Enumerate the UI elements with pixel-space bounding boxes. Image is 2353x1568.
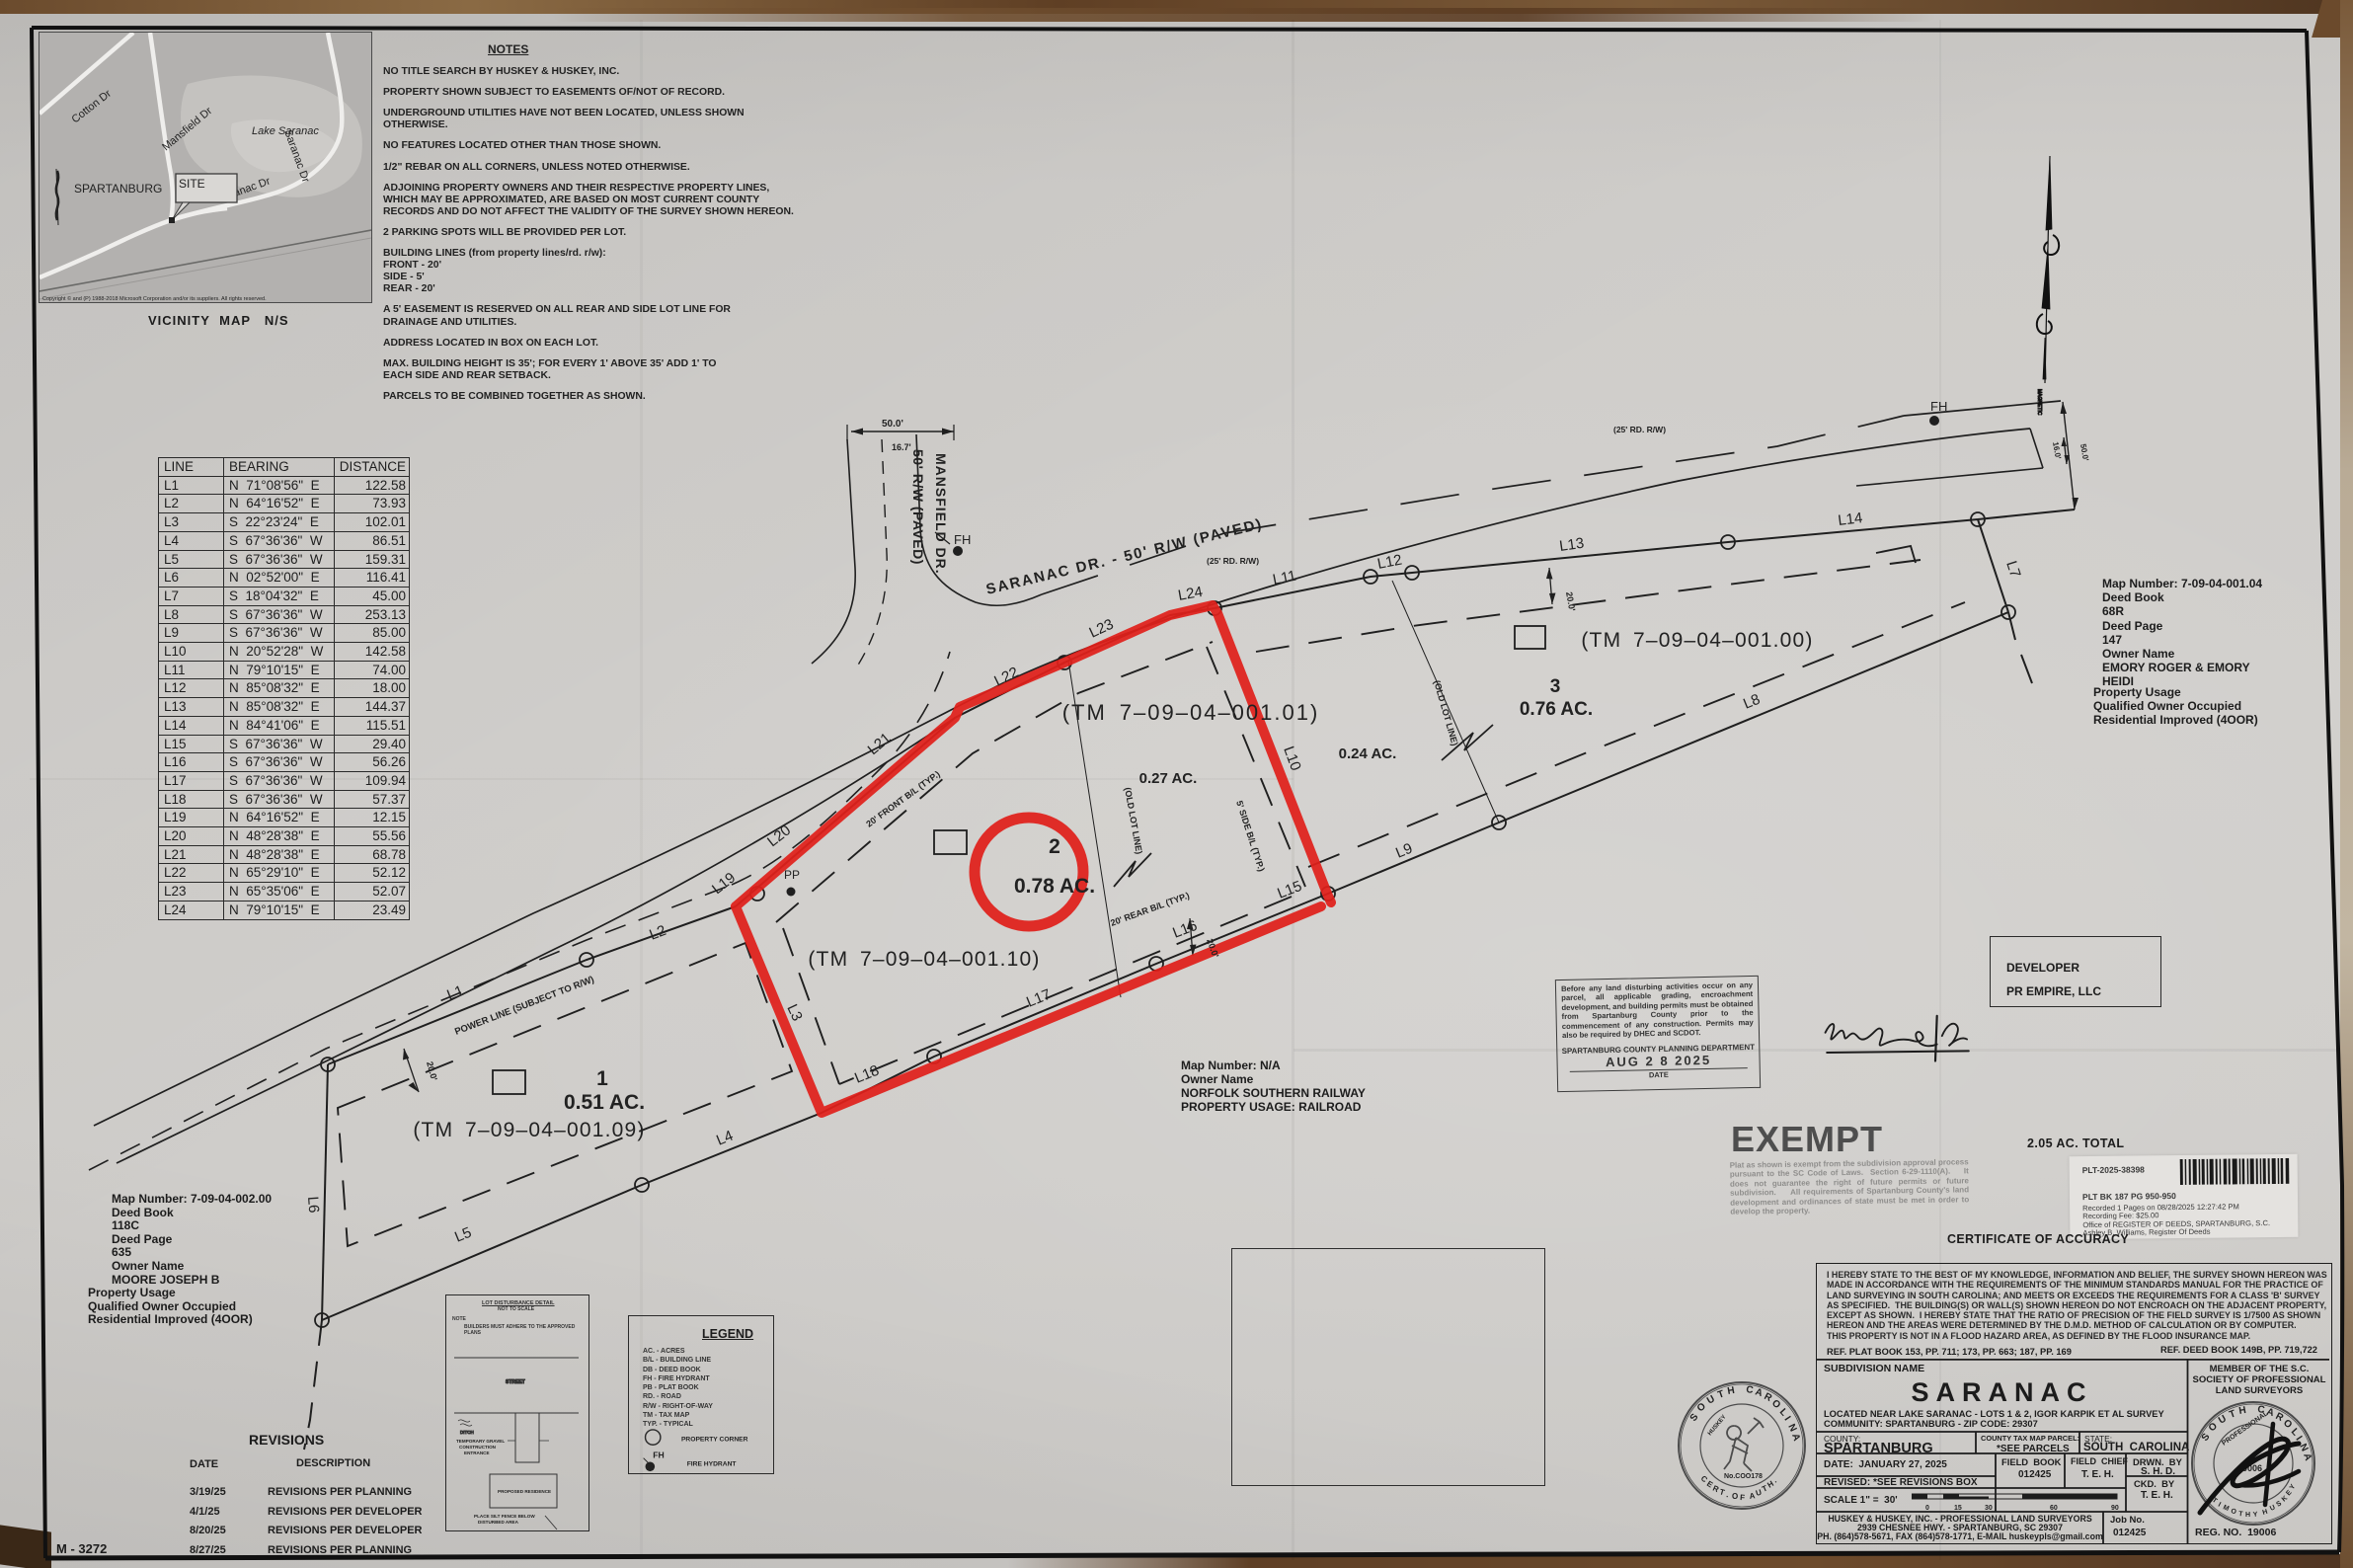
svg-text:L21: L21 bbox=[865, 730, 895, 758]
svg-text:Copyright © and (P) 1988-2018: Copyright © and (P) 1988-2018 Microsoft … bbox=[42, 295, 267, 302]
svg-text:L17: L17 bbox=[1024, 986, 1054, 1011]
svg-text:(TM 7–09–04–001.00): (TM 7–09–04–001.00) bbox=[1581, 629, 1813, 652]
svg-text:20.0': 20.0' bbox=[425, 1060, 439, 1082]
svg-text:L13: L13 bbox=[1558, 535, 1585, 555]
svg-text:O: O bbox=[1732, 1492, 1738, 1501]
svg-text:L14: L14 bbox=[1837, 510, 1863, 529]
svg-text:(TM 7–09–04–001.10): (TM 7–09–04–001.10) bbox=[808, 948, 1040, 971]
svg-text:U: U bbox=[1705, 1393, 1717, 1406]
svg-text:L11: L11 bbox=[1272, 568, 1298, 588]
svg-text:Cotton Dr: Cotton Dr bbox=[69, 88, 114, 126]
svg-text:A: A bbox=[1789, 1433, 1802, 1443]
svg-text:(25' RD. R/W): (25' RD. R/W) bbox=[1207, 556, 1259, 566]
svg-text:0.24 AC.: 0.24 AC. bbox=[1339, 745, 1397, 762]
svg-text:20' FRONT B/L (TYP.): 20' FRONT B/L (TYP.) bbox=[864, 769, 942, 829]
svg-text:PROPERTY CORNER: PROPERTY CORNER bbox=[681, 1436, 748, 1443]
svg-text:L19: L19 bbox=[709, 869, 739, 898]
svg-text:MAGNETIC: MAGNETIC bbox=[2036, 389, 2042, 416]
svg-text:(OLD LOT LINE): (OLD LOT LINE) bbox=[1123, 787, 1144, 855]
svg-text:MANSFIELD DR.: MANSFIELD DR. bbox=[933, 453, 949, 575]
svg-text:L24: L24 bbox=[1177, 584, 1205, 604]
svg-text:0.76 AC.: 0.76 AC. bbox=[1520, 699, 1593, 720]
svg-text:Y: Y bbox=[2289, 1483, 2298, 1491]
svg-text:FH: FH bbox=[653, 1450, 664, 1460]
svg-text:CONSTRUCTION: CONSTRUCTION bbox=[459, 1445, 497, 1450]
svg-text:SPARTANBURG: SPARTANBURG bbox=[74, 182, 162, 196]
svg-text:H: H bbox=[2245, 1512, 2250, 1519]
svg-text:15: 15 bbox=[1954, 1505, 1962, 1512]
svg-text:I: I bbox=[2217, 1502, 2222, 1509]
svg-text:T: T bbox=[2228, 1408, 2237, 1420]
svg-text:PP: PP bbox=[784, 868, 800, 882]
svg-text:FH: FH bbox=[954, 532, 971, 547]
svg-text:O: O bbox=[2281, 1418, 2294, 1432]
svg-text:3: 3 bbox=[1550, 676, 1561, 697]
svg-text:U: U bbox=[2269, 1504, 2276, 1512]
svg-text:O: O bbox=[1769, 1398, 1782, 1412]
svg-text:50.0': 50.0' bbox=[2078, 443, 2090, 462]
svg-text:L18: L18 bbox=[852, 1062, 882, 1087]
svg-text:S: S bbox=[2200, 1432, 2213, 1444]
svg-text:O: O bbox=[1695, 1401, 1708, 1415]
svg-text:DITCH: DITCH bbox=[460, 1430, 474, 1435]
svg-text:ENTRANCE: ENTRANCE bbox=[464, 1450, 490, 1455]
svg-text:L12: L12 bbox=[1376, 551, 1404, 572]
svg-text:Y: Y bbox=[2252, 1512, 2258, 1519]
svg-text:F: F bbox=[1740, 1493, 1746, 1502]
svg-text:L7: L7 bbox=[2002, 559, 2023, 580]
svg-text:A: A bbox=[2301, 1452, 2314, 1462]
svg-text:50' R/W (PAVED): 50' R/W (PAVED) bbox=[910, 449, 926, 565]
svg-text:L6: L6 bbox=[304, 1196, 322, 1214]
svg-text:N: N bbox=[1785, 1422, 1798, 1433]
svg-text:50.0': 50.0' bbox=[882, 419, 903, 430]
svg-text:.: . bbox=[1726, 1490, 1729, 1499]
svg-text:(25' RD. R/W): (25' RD. R/W) bbox=[1613, 425, 1666, 434]
svg-text:0.78 AC.: 0.78 AC. bbox=[1014, 875, 1095, 898]
svg-text:H: H bbox=[1727, 1385, 1736, 1397]
svg-text:L8: L8 bbox=[1741, 691, 1763, 713]
svg-text:C: C bbox=[1746, 1384, 1755, 1396]
svg-text:HUSKEY: HUSKEY bbox=[1707, 1414, 1728, 1437]
svg-text:1: 1 bbox=[596, 1067, 608, 1090]
svg-text:FH: FH bbox=[1930, 399, 1947, 414]
svg-text:T: T bbox=[2238, 1511, 2244, 1518]
svg-text:DISTURBED AREA: DISTURBED AREA bbox=[478, 1520, 519, 1525]
svg-text:SITE: SITE bbox=[179, 177, 205, 191]
svg-text:0.27 AC.: 0.27 AC. bbox=[1139, 770, 1198, 787]
svg-text:TEMPORARY GRAVEL: TEMPORARY GRAVEL bbox=[456, 1439, 505, 1444]
svg-text:L16: L16 bbox=[1170, 917, 1199, 942]
svg-text:(OLD LOT LINE): (OLD LOT LINE) bbox=[1432, 679, 1459, 747]
svg-text:S: S bbox=[1688, 1412, 1701, 1424]
svg-text:(TM 7–09–04–001.01): (TM 7–09–04–001.01) bbox=[1062, 700, 1320, 725]
svg-text:L2: L2 bbox=[647, 922, 668, 944]
svg-text:FIRE HYDRANT: FIRE HYDRANT bbox=[687, 1460, 738, 1467]
svg-text:0: 0 bbox=[1925, 1505, 1929, 1512]
svg-text:20.0': 20.0' bbox=[1564, 591, 1577, 612]
svg-text:60: 60 bbox=[2050, 1505, 2058, 1512]
svg-text:H: H bbox=[2238, 1405, 2247, 1417]
svg-text:M: M bbox=[2222, 1504, 2230, 1513]
svg-text:90: 90 bbox=[2111, 1505, 2119, 1512]
svg-text:(TM 7–09–04–001.09): (TM 7–09–04–001.09) bbox=[413, 1119, 645, 1141]
svg-text:0.51 AC.: 0.51 AC. bbox=[564, 1091, 645, 1114]
svg-text:PROPOSED RESIDENCE: PROPOSED RESIDENCE bbox=[498, 1489, 551, 1494]
svg-text:PLACE SILT FENCE BELOW: PLACE SILT FENCE BELOW bbox=[474, 1514, 535, 1519]
svg-text:T: T bbox=[1718, 1487, 1725, 1497]
svg-text:No.COO178: No.COO178 bbox=[1724, 1473, 1763, 1480]
svg-text:2: 2 bbox=[1049, 835, 1060, 858]
svg-text:Lake Saranac: Lake Saranac bbox=[252, 125, 319, 137]
svg-text:S: S bbox=[2275, 1500, 2283, 1509]
svg-text:L5: L5 bbox=[452, 1224, 474, 1246]
svg-text:16.7': 16.7' bbox=[892, 442, 911, 452]
svg-text:5' SIDE B/L (TYP.): 5' SIDE B/L (TYP.) bbox=[1234, 800, 1267, 873]
svg-text:L15: L15 bbox=[1275, 878, 1303, 902]
svg-text:STREET: STREET bbox=[506, 1379, 525, 1385]
svg-text:A: A bbox=[1754, 1386, 1764, 1399]
svg-text:U: U bbox=[2217, 1413, 2229, 1426]
svg-text:O: O bbox=[2231, 1508, 2238, 1516]
svg-text:16.0': 16.0' bbox=[2051, 441, 2063, 460]
svg-text:H: H bbox=[2262, 1509, 2269, 1517]
svg-text:T: T bbox=[1716, 1388, 1726, 1400]
svg-text:L20: L20 bbox=[764, 822, 794, 850]
svg-text:L4: L4 bbox=[714, 1128, 736, 1149]
svg-text:30: 30 bbox=[1985, 1505, 1993, 1512]
